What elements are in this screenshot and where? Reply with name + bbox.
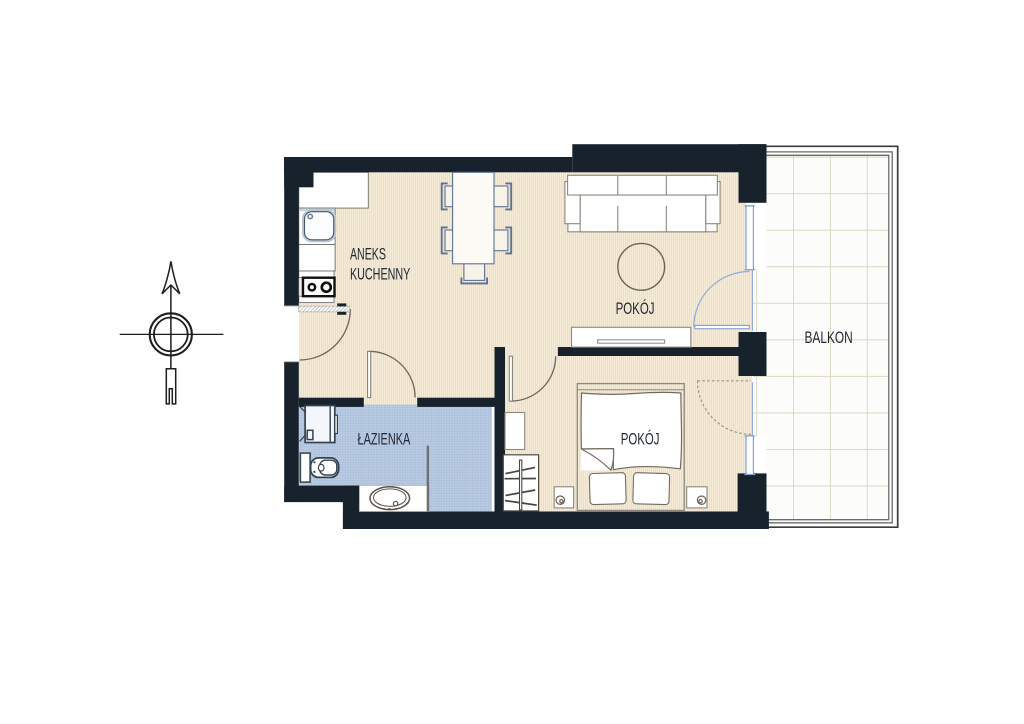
svg-text:ŁAZIENKA: ŁAZIENKA — [358, 429, 411, 448]
svg-text:POKÓJ: POKÓJ — [621, 430, 660, 449]
svg-text:POKÓJ: POKÓJ — [616, 299, 655, 318]
svg-text:ANEKS: ANEKS — [350, 245, 386, 264]
svg-text:BALKON: BALKON — [805, 328, 853, 347]
svg-text:KUCHENNY: KUCHENNY — [350, 265, 410, 284]
